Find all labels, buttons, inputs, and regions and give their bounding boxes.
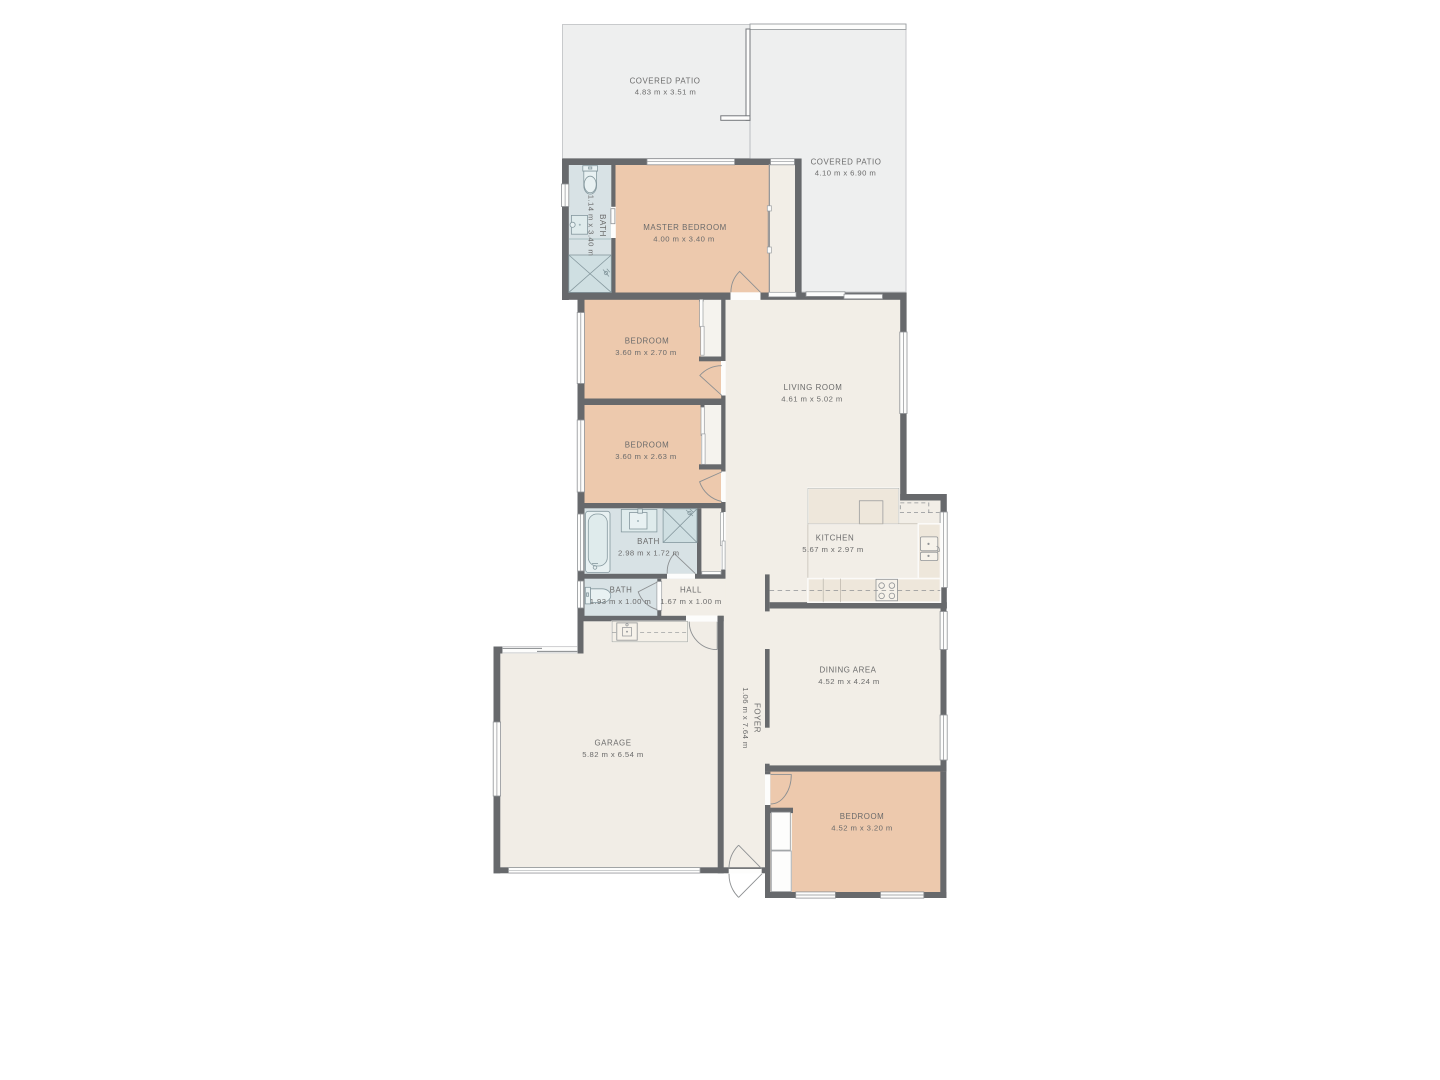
- svg-text:HALL: HALL: [680, 586, 702, 595]
- svg-text:BATH: BATH: [637, 537, 660, 546]
- svg-text:MASTER BEDROOM: MASTER BEDROOM: [643, 223, 727, 232]
- svg-text:DINING AREA: DINING AREA: [820, 666, 877, 675]
- svg-text:4.52 m x 3.20 m: 4.52 m x 3.20 m: [831, 824, 892, 833]
- svg-text:BATH: BATH: [610, 586, 633, 595]
- svg-text:BATH: BATH: [598, 214, 607, 237]
- svg-text:BEDROOM: BEDROOM: [625, 337, 670, 346]
- svg-text:2.98 m x 1.72 m: 2.98 m x 1.72 m: [618, 549, 679, 558]
- svg-text:5.82 m x 6.54 m: 5.82 m x 6.54 m: [582, 750, 643, 759]
- svg-text:1.93 m x 1.00 m: 1.93 m x 1.00 m: [590, 597, 651, 606]
- svg-text:KITCHEN: KITCHEN: [816, 534, 854, 543]
- svg-text:LIVING ROOM: LIVING ROOM: [784, 383, 843, 392]
- svg-text:1.14 m x 3.40 m: 1.14 m x 3.40 m: [587, 195, 596, 256]
- svg-text:4.10 m x 6.90 m: 4.10 m x 6.90 m: [815, 169, 876, 178]
- svg-text:4.52 m x 4.24 m: 4.52 m x 4.24 m: [818, 677, 879, 686]
- svg-text:BEDROOM: BEDROOM: [840, 812, 885, 821]
- svg-text:COVERED PATIO: COVERED PATIO: [811, 158, 882, 167]
- svg-text:3.60 m x 2.70 m: 3.60 m x 2.70 m: [615, 348, 676, 357]
- svg-text:GARAGE: GARAGE: [594, 739, 631, 748]
- svg-text:BEDROOM: BEDROOM: [625, 441, 670, 450]
- svg-text:COVERED PATIO: COVERED PATIO: [630, 77, 701, 86]
- svg-text:4.83 m x 3.51 m: 4.83 m x 3.51 m: [635, 88, 696, 97]
- svg-text:1.06 m x 7.64 m: 1.06 m x 7.64 m: [741, 687, 750, 748]
- svg-text:5.67 m x 2.97 m: 5.67 m x 2.97 m: [802, 545, 863, 554]
- svg-text:4.61 m x 5.02 m: 4.61 m x 5.02 m: [781, 395, 842, 404]
- svg-text:1.67 m x 1.00 m: 1.67 m x 1.00 m: [660, 597, 721, 606]
- svg-text:3.60 m x 2.63 m: 3.60 m x 2.63 m: [615, 452, 676, 461]
- svg-text:4.00 m x 3.40 m: 4.00 m x 3.40 m: [653, 235, 714, 244]
- svg-text:FOYER: FOYER: [753, 703, 762, 733]
